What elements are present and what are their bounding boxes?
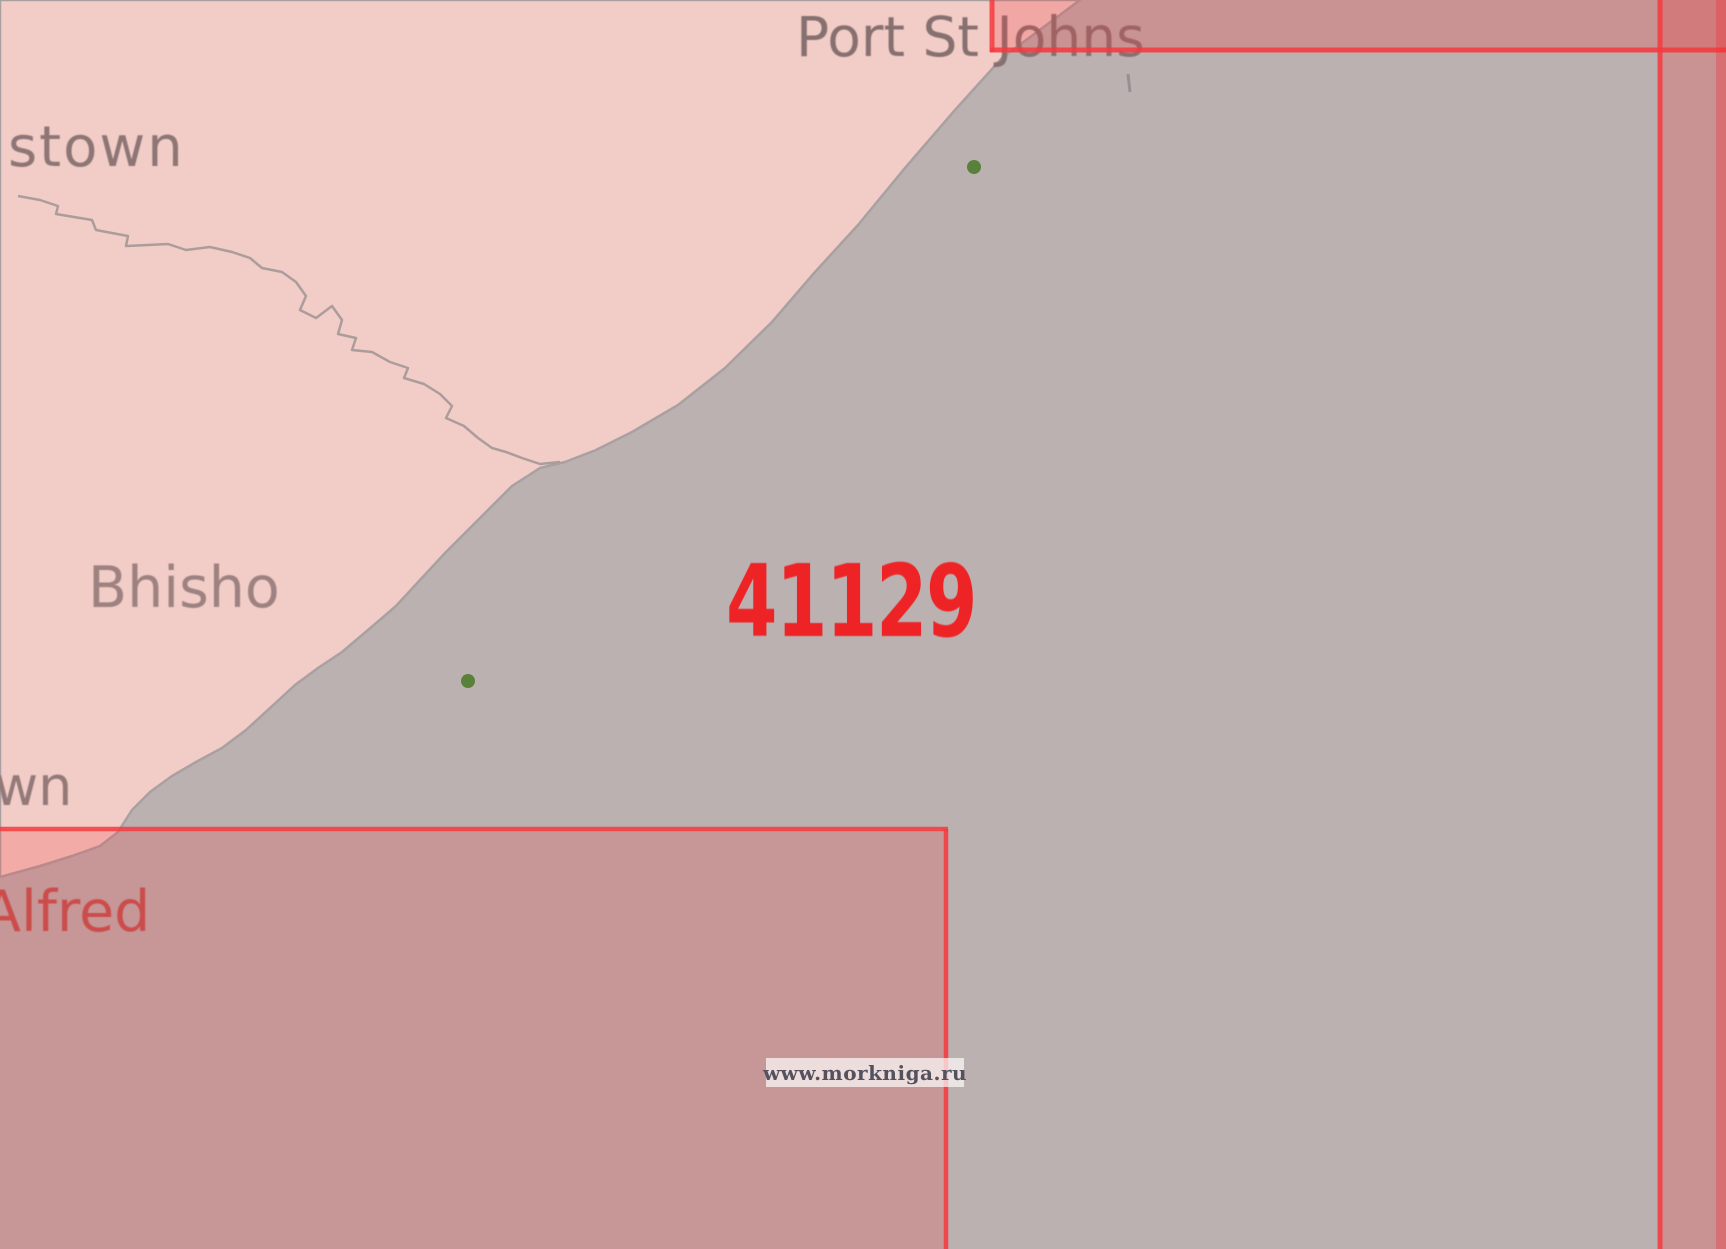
watermark: www.morkniga.ru: [766, 1058, 964, 1087]
chart-number-41129: 41129: [726, 552, 976, 652]
label-queenstown-partial: stown: [8, 120, 185, 176]
label-port-st-johns: Port St Johns: [796, 10, 1145, 65]
label-port-alfred-partial: Alfred: [0, 884, 150, 941]
label-bhisho: Bhisho: [88, 560, 280, 617]
label-town-partial: wn: [0, 760, 72, 814]
chart-index-map: stown Port St Johns Bhisho wn Alfred 411…: [0, 0, 1726, 1249]
